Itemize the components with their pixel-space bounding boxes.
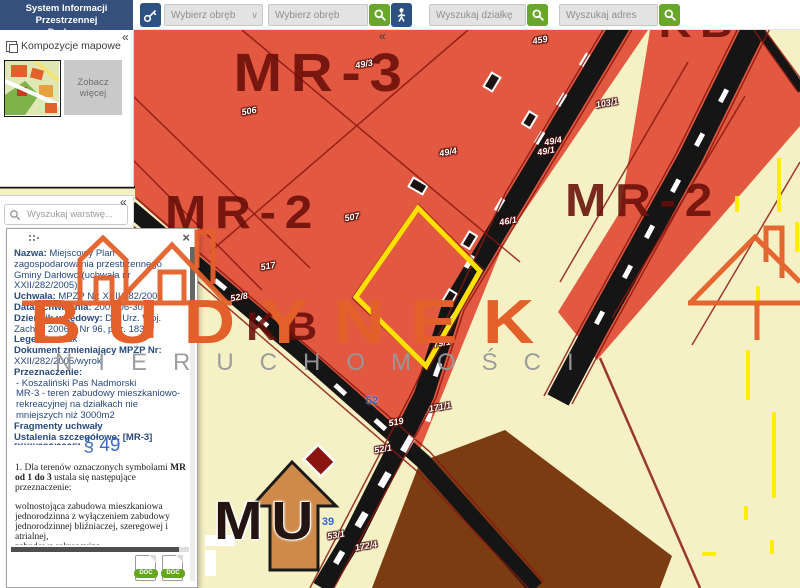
destination-item: MR-3 - teren zabudowy mieszkaniowo-rekre… <box>14 389 184 421</box>
app-title-line2: Darłowo <box>0 27 133 39</box>
see-more-button[interactable]: Zobacz więcej <box>64 60 122 115</box>
layer-search-box <box>4 204 128 225</box>
address-search-input[interactable] <box>559 4 658 26</box>
composition-thumbnail[interactable] <box>4 60 61 117</box>
chevron-down-icon: ∨ <box>251 10 258 21</box>
plan-info-panel: × Nazwa: Miejscowy Plan zagospodarowania… <box>6 228 198 588</box>
region-select[interactable]: Wybierz obręb ∨ <box>164 4 263 26</box>
excerpt-intro: 1. Dla terenów oznaczonych symbolami MR … <box>15 463 187 493</box>
login-key-button[interactable] <box>140 3 161 27</box>
region-select-value: Wybierz obręb <box>171 10 251 21</box>
parcel-search-button[interactable] <box>527 4 548 26</box>
panel-vscrollbar-track <box>190 247 195 581</box>
page-fold <box>149 555 156 562</box>
compositions-panel: Kompozycje mapowe Zobacz więcej <box>0 30 134 187</box>
excerpt-hscrollbar-track <box>11 547 189 552</box>
search-icon <box>531 8 545 22</box>
region-search-button[interactable] <box>369 4 390 26</box>
topbar: System Informacji Przestrzennej Darłowo … <box>0 0 800 30</box>
panel-drag-icon[interactable] <box>29 235 31 237</box>
region-search-input[interactable] <box>268 4 368 26</box>
composition-thumbnail-image <box>5 61 59 115</box>
plan-field: Dziennik urzędowy: Dz. Urz. Woj. Zach. z… <box>14 314 184 336</box>
compositions-header: Kompozycje mapowe <box>6 40 121 52</box>
attachments: DOC DOC <box>135 555 183 581</box>
excerpt-item: zabudowa rekreacyjna, <box>15 542 187 545</box>
download-doc-icon[interactable]: DOC <box>135 555 156 581</box>
search-icon <box>373 8 387 22</box>
searchbar-collapse-arrow[interactable]: « <box>379 30 386 42</box>
plan-field: Nazwa: Miejscowy Plan zagospodarowania p… <box>14 249 184 292</box>
download-doc-icon[interactable]: DOC <box>162 555 183 581</box>
layer-search-input[interactable] <box>25 206 125 223</box>
excerpt-item: wolnostojąca zabudowa mieszkaniowa jedno… <box>15 502 187 542</box>
fragments-heading: Fragmenty uchwały <box>14 422 184 433</box>
app-title: System Informacji Przestrzennej Darłowo <box>0 0 133 30</box>
compositions-collapse-arrow[interactable]: « <box>122 31 129 43</box>
close-icon[interactable]: × <box>182 230 190 245</box>
excerpt-hscrollbar[interactable] <box>11 547 179 552</box>
page-fold <box>176 555 183 562</box>
resolution-excerpt[interactable]: 1. Dla terenów oznaczonych symbolami MR … <box>15 463 187 545</box>
app-window: MR-3 MR-2 MR-2 KB KB MU 459 49/3 506 103… <box>0 0 800 588</box>
map-compositions-icon <box>6 41 17 52</box>
app-title-line1: System Informacji Przestrzennej <box>0 3 133 27</box>
plan-info-content: Nazwa: Miejscowy Plan zagospodarowania p… <box>14 249 184 445</box>
paragraph-reference: § 49 <box>7 435 197 457</box>
tools-button[interactable] <box>391 3 412 27</box>
compositions-title: Kompozycje mapowe <box>21 40 121 52</box>
panel-vscrollbar[interactable] <box>190 247 195 305</box>
parcel-search-input[interactable] <box>429 4 526 26</box>
search-icon <box>663 8 677 22</box>
key-icon <box>143 8 158 23</box>
address-search-button[interactable] <box>659 4 680 26</box>
plan-field: Dokument zmieniający MPZP Nr: XXII/282/2… <box>14 346 184 368</box>
plan-field: Przeznaczenie: <box>14 368 184 379</box>
layers-collapse-arrow[interactable]: « <box>120 196 127 208</box>
person-icon <box>394 7 409 23</box>
search-icon <box>9 209 21 221</box>
